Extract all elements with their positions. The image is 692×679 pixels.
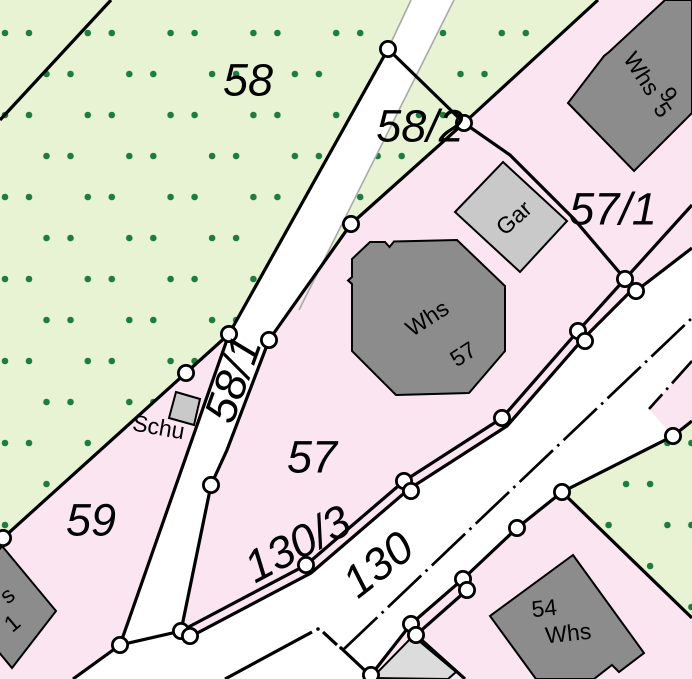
svg-text:58: 58	[223, 55, 273, 106]
svg-text:54: 54	[530, 594, 558, 623]
svg-text:57/1: 57/1	[569, 184, 657, 235]
svg-text:Whs: Whs	[544, 618, 592, 649]
svg-text:59: 59	[66, 495, 116, 546]
svg-text:57: 57	[287, 432, 339, 483]
svg-text:58/2: 58/2	[376, 101, 464, 152]
